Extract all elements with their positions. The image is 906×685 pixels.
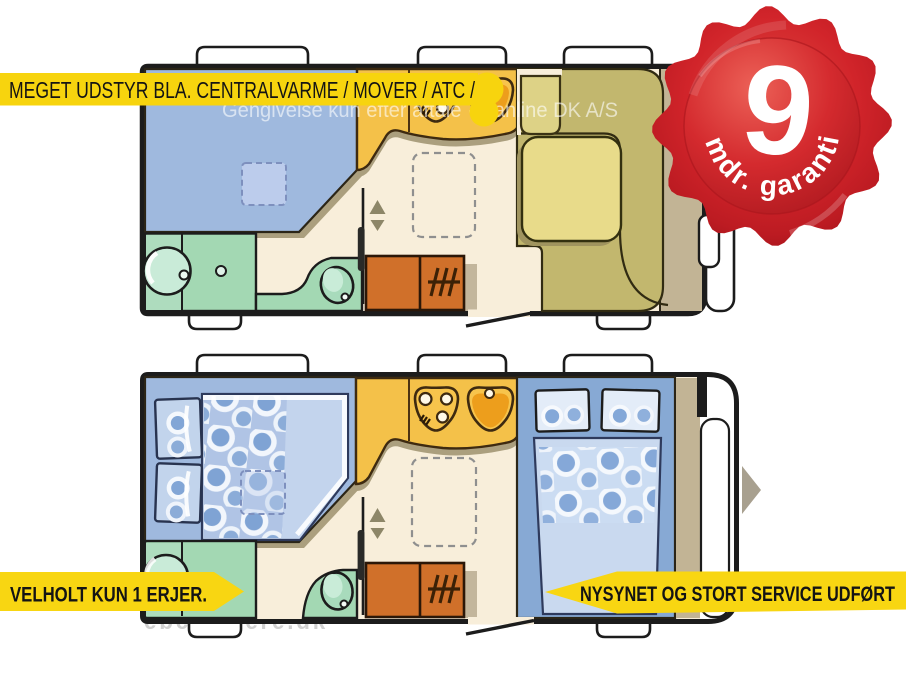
svg-text:VELHOLT KUN 1 ERJER.: VELHOLT KUN 1 ERJER. xyxy=(10,584,207,607)
svg-text:MEGET UDSTYR BLA. CENTRALVARME: MEGET UDSTYR BLA. CENTRALVARME / MOVER /… xyxy=(9,77,475,103)
svg-text:NYSYNET OG STORT SERVICE UDFØR: NYSYNET OG STORT SERVICE UDFØRT xyxy=(580,583,895,606)
